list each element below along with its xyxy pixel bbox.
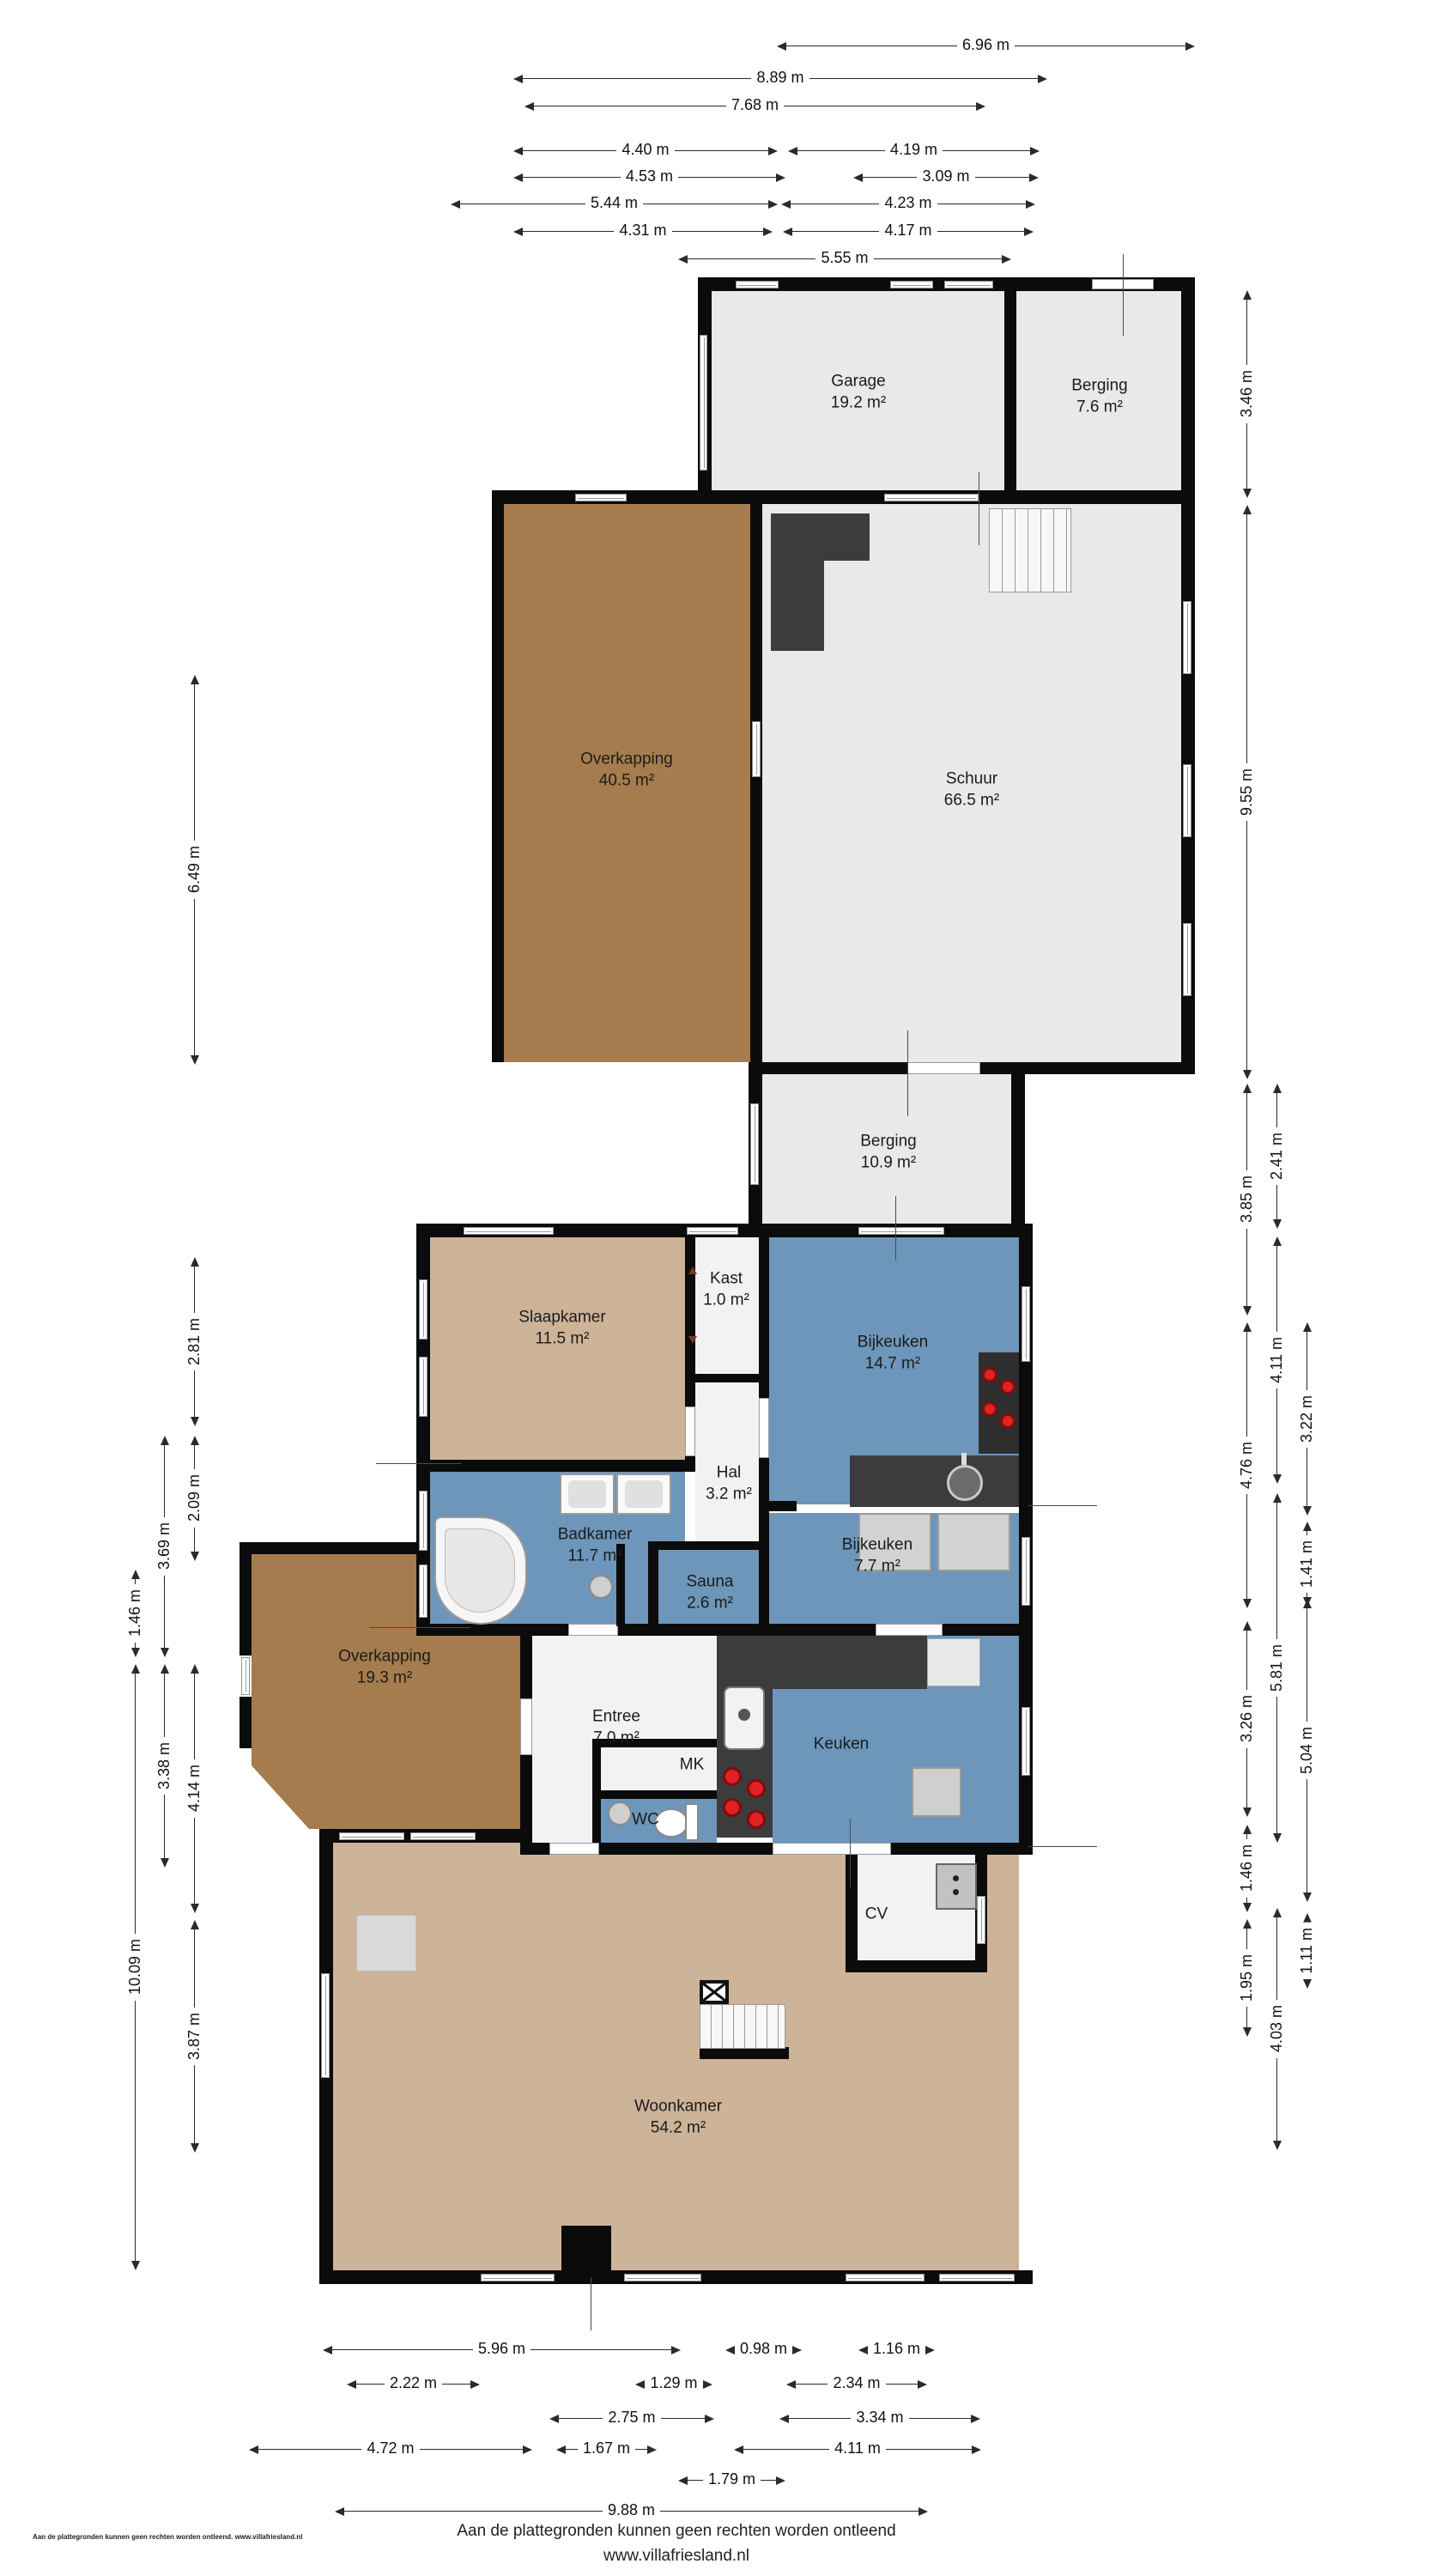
door <box>759 1398 769 1458</box>
window <box>575 494 627 501</box>
dimension-line: 7.68 m <box>524 97 985 115</box>
dimension-line: 1.67 m <box>556 2440 657 2458</box>
room-label-schuur: Schuur66.5 m² <box>944 769 999 811</box>
door <box>907 1062 980 1074</box>
dimension-line: 1.29 m <box>635 2375 712 2393</box>
dimension-line: 1.79 m <box>678 2471 785 2489</box>
window <box>481 2274 555 2281</box>
dimension-line: 8.89 m <box>513 70 1047 88</box>
door <box>876 1624 943 1636</box>
window <box>1022 1537 1030 1606</box>
room-label-badkamer: Badkamer11.7 m² <box>558 1524 633 1566</box>
sink-icon <box>947 1465 983 1501</box>
dimension-line: 5.04 m <box>1298 1599 1316 1902</box>
window <box>858 1227 944 1235</box>
dimension-line: 1.41 m <box>1298 1522 1316 1607</box>
burner-icon <box>747 1779 766 1798</box>
tick-mark <box>376 1463 462 1464</box>
window <box>1183 923 1191 996</box>
tick-mark <box>591 2277 591 2330</box>
wall <box>1011 1074 1025 1224</box>
counter-cabinet <box>927 1638 980 1686</box>
toilet-tank <box>685 1803 699 1841</box>
door <box>549 1843 599 1855</box>
window <box>884 494 979 501</box>
tick-mark <box>1028 1846 1097 1847</box>
shower-icon <box>589 1575 613 1599</box>
dimension-line: 4.11 m <box>1268 1236 1286 1484</box>
window <box>321 1973 330 2078</box>
kitchen-counter <box>850 1455 1019 1507</box>
dimension-line: 3.87 m <box>185 1920 203 2153</box>
boiler-dot <box>953 1875 959 1881</box>
window <box>1022 1707 1030 1776</box>
faucet-icon <box>738 1709 750 1721</box>
window <box>944 281 993 289</box>
vanity-basin <box>568 1480 606 1508</box>
tick-mark <box>1123 254 1124 336</box>
wall <box>700 2047 789 2059</box>
door <box>685 1406 695 1456</box>
kitchen-counter <box>773 1636 927 1689</box>
window <box>700 335 707 471</box>
dimension-line: 6.96 m <box>777 37 1195 55</box>
window <box>419 1491 427 1551</box>
burner-icon <box>1000 1379 1016 1394</box>
dimension-line: 4.53 m <box>513 168 785 186</box>
wall <box>592 1790 717 1799</box>
room-label-overkapping-large: Overkapping40.5 m² <box>580 749 673 791</box>
room-label-mk: MK <box>680 1755 705 1777</box>
dimension-line: 1.46 m <box>1238 1825 1256 1912</box>
dimension-line: 4.14 m <box>185 1664 203 1913</box>
room-label-hal: Hal3.2 m² <box>706 1462 752 1504</box>
wall <box>759 1501 797 1511</box>
burner-icon <box>1000 1413 1016 1429</box>
chimney-block <box>771 561 824 651</box>
front-door <box>520 1698 532 1755</box>
tick-mark <box>369 1627 470 1628</box>
dimension-line: 6.49 m <box>185 675 203 1065</box>
window <box>939 2274 1015 2281</box>
fireplace <box>561 2226 611 2284</box>
dimension-line: 3.09 m <box>853 168 1039 186</box>
room-label-berging-top: Berging7.6 m² <box>1071 375 1128 417</box>
dimension-line: 5.96 m <box>323 2341 681 2359</box>
footer-url: www.villafriesland.nl <box>0 2543 1353 2568</box>
dimension-line: 1.46 m <box>126 1570 144 1657</box>
dimension-line: 3.85 m <box>1238 1084 1256 1315</box>
burner-icon <box>723 1798 742 1817</box>
window <box>339 1832 404 1840</box>
dimension-line: 3.69 m <box>155 1436 173 1657</box>
wall <box>1181 277 1195 504</box>
dimension-line: 5.81 m <box>1268 1493 1286 1843</box>
dimension-line: 3.46 m <box>1238 290 1256 498</box>
room-label-keuken: Keuken <box>814 1735 869 1756</box>
dimension-line: 4.76 m <box>1238 1322 1256 1608</box>
room-label-cv: CV <box>865 1905 888 1926</box>
dimension-line: 4.19 m <box>788 142 1040 160</box>
boiler-dot <box>953 1889 959 1895</box>
chimney-block <box>771 513 870 561</box>
washbasin-icon <box>608 1801 632 1826</box>
window <box>241 1657 250 1695</box>
room-label-overkapping-front: Overkapping19.3 m² <box>338 1646 431 1688</box>
burner-icon <box>723 1767 742 1786</box>
dimension-line: 0.98 m <box>725 2341 785 2359</box>
door <box>568 1624 618 1636</box>
window <box>419 1564 427 1618</box>
room-label-slaapkamer: Slaapkamer11.5 m² <box>518 1307 605 1349</box>
wall <box>648 1541 658 1627</box>
room-label-kast: Kast1.0 m² <box>703 1268 749 1310</box>
window <box>890 281 933 289</box>
wall <box>239 1554 252 1656</box>
window <box>846 2274 925 2281</box>
dimension-line: 5.44 m <box>451 195 778 213</box>
wall <box>846 1855 858 1972</box>
room-label-berging-mid: Berging10.9 m² <box>860 1131 917 1173</box>
dimension-line: 4.31 m <box>513 222 773 240</box>
wall <box>750 504 762 1062</box>
dimension-line: 1.95 m <box>1238 1919 1256 2037</box>
tick-mark <box>850 1819 851 1887</box>
toilet-icon <box>654 1808 688 1838</box>
tick-mark <box>1028 1505 1097 1506</box>
window <box>687 1227 738 1235</box>
dimension-line: 2.34 m <box>786 2375 927 2393</box>
dimension-line: 1.11 m <box>1298 1913 1316 1980</box>
dimension-line: 2.41 m <box>1268 1084 1286 1229</box>
tick-mark <box>907 1030 908 1116</box>
vanity-basin <box>625 1480 663 1508</box>
tick-mark <box>979 472 979 545</box>
room-label-bijkeuken-large: Bijkeuken14.7 m² <box>858 1332 928 1374</box>
dimension-line: 1.16 m <box>858 2341 928 2359</box>
wall <box>648 1541 759 1550</box>
window <box>464 1227 554 1235</box>
room-label-woonkamer: Woonkamer54.2 m² <box>634 2096 722 2138</box>
room-label-bijkeuken-small: Bijkeuken7.7 m² <box>842 1534 912 1577</box>
window <box>419 1357 427 1417</box>
window <box>410 1832 476 1840</box>
dimension-line: 4.17 m <box>783 222 1034 240</box>
dimension-line: 4.72 m <box>249 2440 532 2458</box>
window <box>1022 1286 1030 1362</box>
wall <box>430 1460 695 1472</box>
dimension-line: 5.55 m <box>678 250 1011 268</box>
dimension-line: 3.34 m <box>779 2409 980 2427</box>
dimension-line: 4.11 m <box>734 2440 981 2458</box>
faucet-icon <box>961 1453 967 1465</box>
door-arrow-icon <box>688 1336 697 1348</box>
dimension-line: 9.88 m <box>335 2502 928 2520</box>
tick-mark <box>895 1196 896 1261</box>
window <box>419 1279 427 1340</box>
dimension-line: 2.75 m <box>549 2409 714 2427</box>
dimension-line: 3.22 m <box>1298 1322 1316 1516</box>
bathtub-inner <box>445 1528 515 1613</box>
window <box>752 721 761 777</box>
room-label-sauna: Sauna2.6 m² <box>687 1571 734 1613</box>
rug <box>356 1915 416 1971</box>
dimension-line: 3.38 m <box>155 1664 173 1868</box>
stairs-ic*on <box>989 508 1071 592</box>
window <box>977 1896 985 1944</box>
dimension-line: 10.09 m <box>126 1664 144 2270</box>
window <box>1183 764 1191 837</box>
dimension-line: 4.03 m <box>1268 1908 1286 2150</box>
dryer-icon <box>937 1513 1010 1571</box>
wall <box>846 1960 987 1972</box>
stairs-icon <box>700 2004 785 2049</box>
burner-icon <box>747 1810 766 1829</box>
sliding-door <box>773 1843 891 1855</box>
dimension-line: 2.81 m <box>185 1257 203 1426</box>
boiler-icon <box>936 1863 977 1910</box>
floor-plan: Garage19.2 m² Berging7.6 m² Overkapping4… <box>0 0 1449 2576</box>
wall <box>239 1542 430 1554</box>
window <box>624 2274 701 2281</box>
wall <box>1004 291 1016 490</box>
room-label-wc: WC <box>632 1810 659 1832</box>
hatch-icon <box>700 1980 729 2004</box>
window <box>736 281 779 289</box>
room-label-garage: Garage19.2 m² <box>831 371 886 413</box>
kitchen-table <box>912 1767 961 1817</box>
window <box>1183 601 1191 674</box>
burner-icon <box>982 1367 997 1382</box>
dimension-line: 9.55 m <box>1238 505 1256 1079</box>
footer-small-print: Aan de plattegronden kunnen geen rechten… <box>33 2533 302 2541</box>
dimension-line: 4.23 m <box>781 195 1035 213</box>
window <box>750 1103 759 1185</box>
door-arrow-icon <box>688 1262 697 1274</box>
dimension-line: 2.22 m <box>347 2375 480 2393</box>
footer-disclaimer: Aan de plattegronden kunnen geen rechten… <box>0 2518 1353 2569</box>
dimension-line: 2.09 m <box>185 1436 203 1561</box>
wall <box>492 490 504 1062</box>
room-label-entree: Entree7.0 m² <box>592 1706 640 1748</box>
wall <box>239 1697 252 1748</box>
dimension-line: 4.40 m <box>513 142 778 160</box>
dimension-line: 3.26 m <box>1238 1621 1256 1817</box>
burner-icon <box>982 1401 997 1417</box>
